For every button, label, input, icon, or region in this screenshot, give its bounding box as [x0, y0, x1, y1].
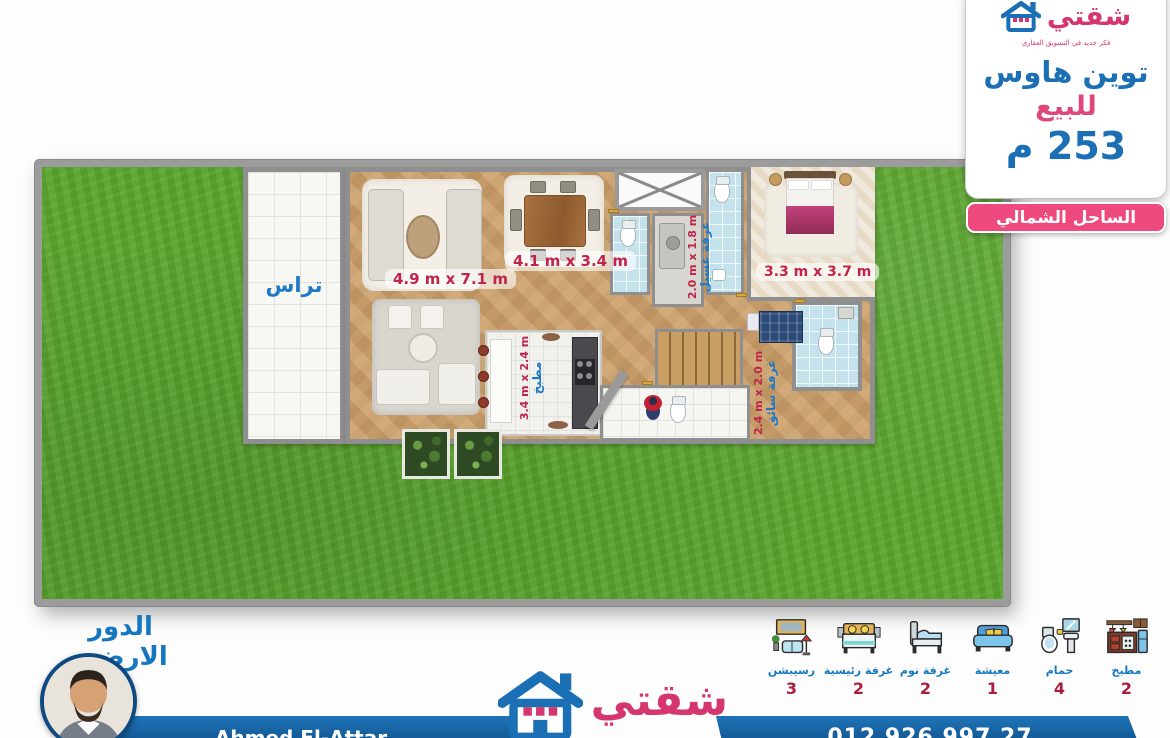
- driver-room-name: غرفة سائق: [765, 360, 779, 427]
- brand-logo: شقتي: [966, 0, 1166, 38]
- toilet: [670, 401, 686, 423]
- house-logo-icon: [1001, 0, 1041, 33]
- garden-grass: تراس: [42, 167, 1003, 599]
- agent-name-ribbon: Ahmed El-Attar: [76, 716, 526, 738]
- legend-label: مطبخ: [1112, 664, 1142, 677]
- armchair: [438, 363, 476, 405]
- reception-icon: [769, 616, 815, 662]
- terrace-label: تراس: [256, 273, 332, 297]
- planter-boxes: [402, 429, 502, 479]
- footer-brand-name: شقتي: [591, 668, 728, 734]
- legend-item-bedroom: غرفة نوم 2: [892, 616, 959, 698]
- room-legend: رسيبشن 3 غرفة رئيسية 2: [758, 616, 1162, 698]
- legend-count: 4: [1054, 679, 1065, 698]
- master-bedroom-icon: [836, 616, 882, 662]
- legend-item-kitchen: مطبخ 2: [1093, 616, 1160, 698]
- phone-number: 012 926 997 27: [827, 725, 1032, 738]
- round-table: [408, 333, 438, 363]
- dining-chair: [530, 181, 546, 193]
- legend-count: 3: [786, 679, 797, 698]
- kitchen-icon: [1104, 616, 1150, 662]
- offer-card: شقتي فكر جديد في التسويق العقاري توين ها…: [966, 0, 1166, 198]
- legend-item-living: معيشة 1: [959, 616, 1026, 698]
- laundry-name: غرفة غسيل: [699, 222, 713, 293]
- nightstand: [769, 173, 782, 186]
- living-sofa-icon: [970, 616, 1016, 662]
- legend-count: 2: [1121, 679, 1132, 698]
- legend-item-bathroom: حمام 4: [1026, 616, 1093, 698]
- floor-plan-frame: تراس: [35, 160, 1010, 606]
- sink: [712, 269, 726, 281]
- legend-label: غرفة نوم: [900, 664, 951, 677]
- bar-stool: [478, 397, 489, 408]
- person-top-view-icon: [642, 391, 664, 421]
- sofa: [376, 369, 430, 405]
- brand-tagline: فكر جديد في التسويق العقاري: [966, 39, 1166, 47]
- footer-brand-logo: شقتي: [498, 668, 728, 738]
- location-badge: الساحل الشمالي: [966, 202, 1166, 233]
- pillow: [811, 180, 832, 190]
- skylight-shaft: [615, 169, 705, 211]
- offer-subtitle: للبيع: [966, 91, 1166, 122]
- stove: [575, 359, 595, 385]
- flyer-root: تراس: [0, 0, 1170, 738]
- legend-label: معيشة: [975, 664, 1010, 677]
- nightstand: [839, 173, 852, 186]
- brand-name: شقتي: [1047, 1, 1131, 32]
- planter: [402, 429, 450, 479]
- offer-title: توين هاوس: [966, 55, 1166, 89]
- master-dimensions: 3.3 m x 3.7 m: [756, 263, 879, 281]
- legend-label: حمام: [1046, 664, 1074, 677]
- laundry-label: 2.0 m x 1.8 m غرفة غسيل: [686, 214, 714, 300]
- dining-chair: [510, 209, 522, 231]
- legend-count: 2: [853, 679, 864, 698]
- coffee-table: [406, 215, 440, 259]
- toilet: [620, 225, 636, 247]
- armchair: [388, 305, 412, 329]
- bedroom-icon: [903, 616, 949, 662]
- legend-count: 1: [987, 679, 998, 698]
- door-hinge: [794, 299, 805, 303]
- toilet: [714, 181, 730, 203]
- washing-machine: [659, 223, 685, 269]
- legend-label: غرفة رئيسية: [824, 664, 893, 677]
- staircase: [655, 329, 743, 389]
- bathroom-icon: [1037, 616, 1083, 662]
- legend-label: رسيبشن: [768, 664, 815, 677]
- legend-item-reception: رسيبشن 3: [758, 616, 825, 698]
- shaft-x-icon: [619, 173, 701, 207]
- legend-count: 2: [920, 679, 931, 698]
- armchair: [420, 305, 444, 329]
- bar-stool: [478, 371, 489, 382]
- pillow: [788, 180, 809, 190]
- living-dimensions: 4.9 m x 7.1 m: [385, 269, 516, 289]
- sofa: [368, 189, 404, 281]
- bathroom-cabinet: [838, 307, 854, 319]
- kitchen-mat: [548, 421, 568, 429]
- house-logo-icon: [498, 668, 583, 738]
- agent-portrait: [44, 657, 133, 738]
- toilet: [818, 333, 834, 355]
- door-hinge: [736, 293, 747, 297]
- bed-blanket: [786, 206, 834, 234]
- dining-chair: [588, 209, 600, 231]
- bar-stool: [478, 345, 489, 356]
- legend-item-master-bedroom: غرفة رئيسية 2: [825, 616, 892, 698]
- kitchen-name: مطبخ: [531, 362, 545, 395]
- door-hinge: [642, 381, 653, 385]
- dining-chair: [560, 181, 576, 193]
- sofa: [446, 189, 482, 281]
- dining-dimensions: 4.1 m x 3.4 m: [505, 251, 636, 271]
- dining-table: [524, 195, 586, 247]
- planter: [454, 429, 502, 479]
- phone-ribbon: 012 926 997 27: [716, 716, 1144, 738]
- kitchen-label: 3.4 m x 2.4 m مطبخ: [517, 330, 547, 426]
- door-hinge: [608, 209, 619, 213]
- driver-room-label: 2.4 m x 2.0 m غرفة سائق: [752, 354, 780, 432]
- terrace-area: [243, 167, 345, 444]
- kitchen-island: [490, 339, 512, 423]
- offer-area: 253 م: [966, 124, 1166, 168]
- pillow: [747, 313, 759, 331]
- person-figure: [642, 391, 664, 421]
- agent-name: Ahmed El-Attar: [215, 726, 387, 738]
- driver-room-bed: [759, 311, 803, 343]
